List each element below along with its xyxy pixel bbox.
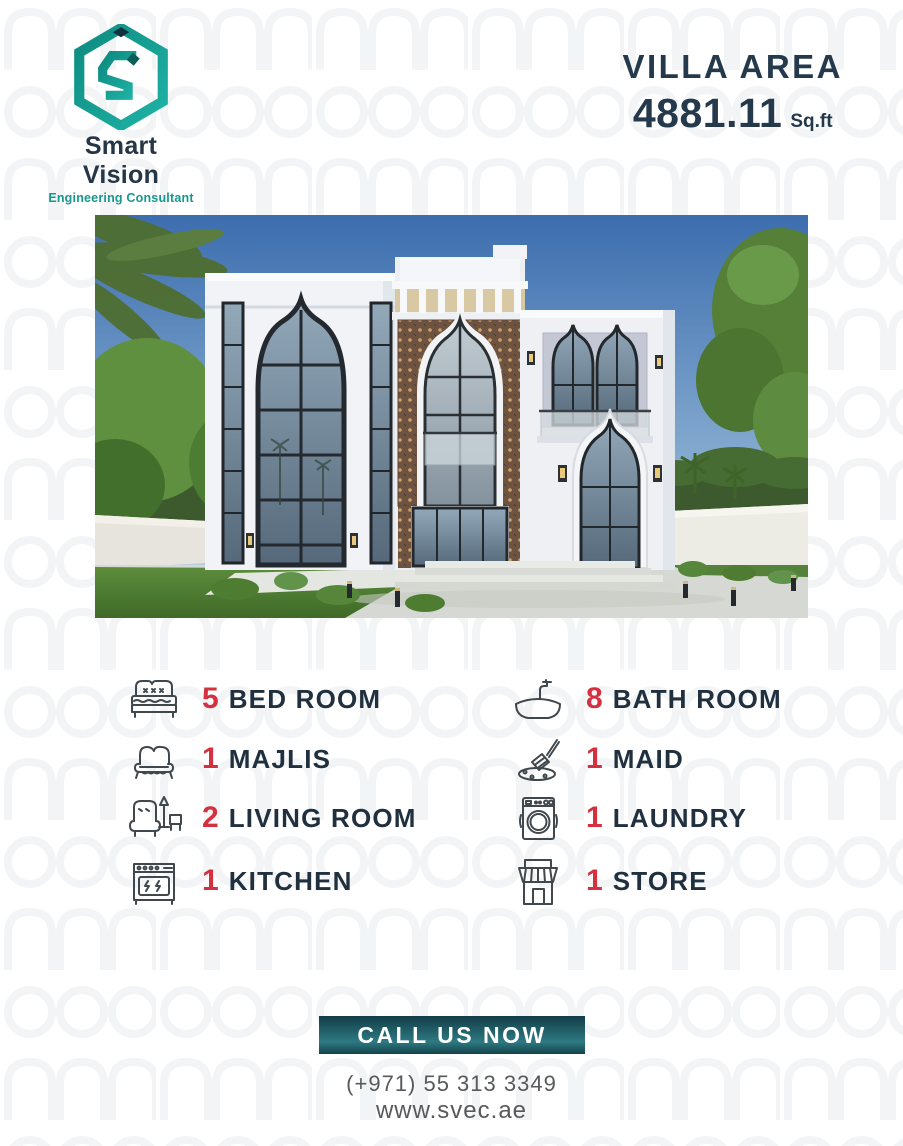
villa-photo — [95, 215, 808, 618]
villa-area-value: 4881.11 — [633, 90, 782, 136]
feature-count: 1 — [586, 864, 603, 898]
feature-count: 1 — [202, 864, 219, 898]
website-url: www.svec.ae — [0, 1097, 903, 1125]
feature-label: BATH ROOM — [613, 684, 782, 715]
cleaning-brush-icon — [506, 734, 570, 784]
feature-row-bath-room: 8 BATH ROOM — [506, 674, 782, 724]
phone-number: (+971) 55 313 3349 — [0, 1071, 903, 1097]
feature-count: 1 — [586, 801, 603, 835]
feature-row-laundry: 1 LAUNDRY — [506, 793, 747, 843]
bed-icon — [122, 674, 186, 724]
feature-count: 1 — [202, 742, 219, 776]
washing-machine-icon — [506, 793, 570, 843]
feature-count: 8 — [586, 682, 603, 716]
call-us-now-button[interactable]: CALL US NOW — [319, 1016, 585, 1054]
feature-label: LAUNDRY — [613, 803, 748, 834]
feature-row-kitchen: 1 KITCHEN — [122, 856, 353, 906]
stove-icon — [122, 856, 186, 906]
feature-row-majlis: 1 MAJLIS — [122, 734, 331, 784]
feature-count: 5 — [202, 682, 219, 716]
feature-count: 2 — [202, 801, 219, 835]
brand-logo: Smart Vision Engineering Consultant — [46, 24, 196, 205]
feature-count: 1 — [586, 742, 603, 776]
sofa-icon — [122, 734, 186, 784]
smart-vision-logo-icon — [65, 24, 177, 130]
feature-row-bed-room: 5 BED ROOM — [122, 674, 381, 724]
feature-label: MAJLIS — [229, 744, 332, 775]
feature-label: STORE — [613, 866, 708, 897]
flyer-page: Smart Vision Engineering Consultant VILL… — [0, 0, 903, 1146]
feature-row-store: 1 STORE — [506, 856, 708, 906]
feature-label: BED ROOM — [229, 684, 382, 715]
brand-tagline: Engineering Consultant — [46, 191, 196, 205]
storefront-icon — [506, 856, 570, 906]
bathtub-icon — [506, 674, 570, 724]
armchair-lamp-icon — [122, 793, 186, 843]
feature-label: LIVING ROOM — [229, 803, 417, 834]
feature-row-living-room: 2 LIVING ROOM — [122, 793, 417, 843]
feature-row-maid: 1 MAID — [506, 734, 684, 784]
feature-label: KITCHEN — [229, 866, 353, 897]
brand-name: Smart Vision — [46, 132, 196, 190]
feature-label: MAID — [613, 744, 684, 775]
villa-area-block: VILLA AREA 4881.11Sq.ft — [622, 48, 843, 137]
villa-area-label: VILLA AREA — [622, 48, 843, 86]
villa-area-unit: Sq.ft — [790, 111, 832, 132]
